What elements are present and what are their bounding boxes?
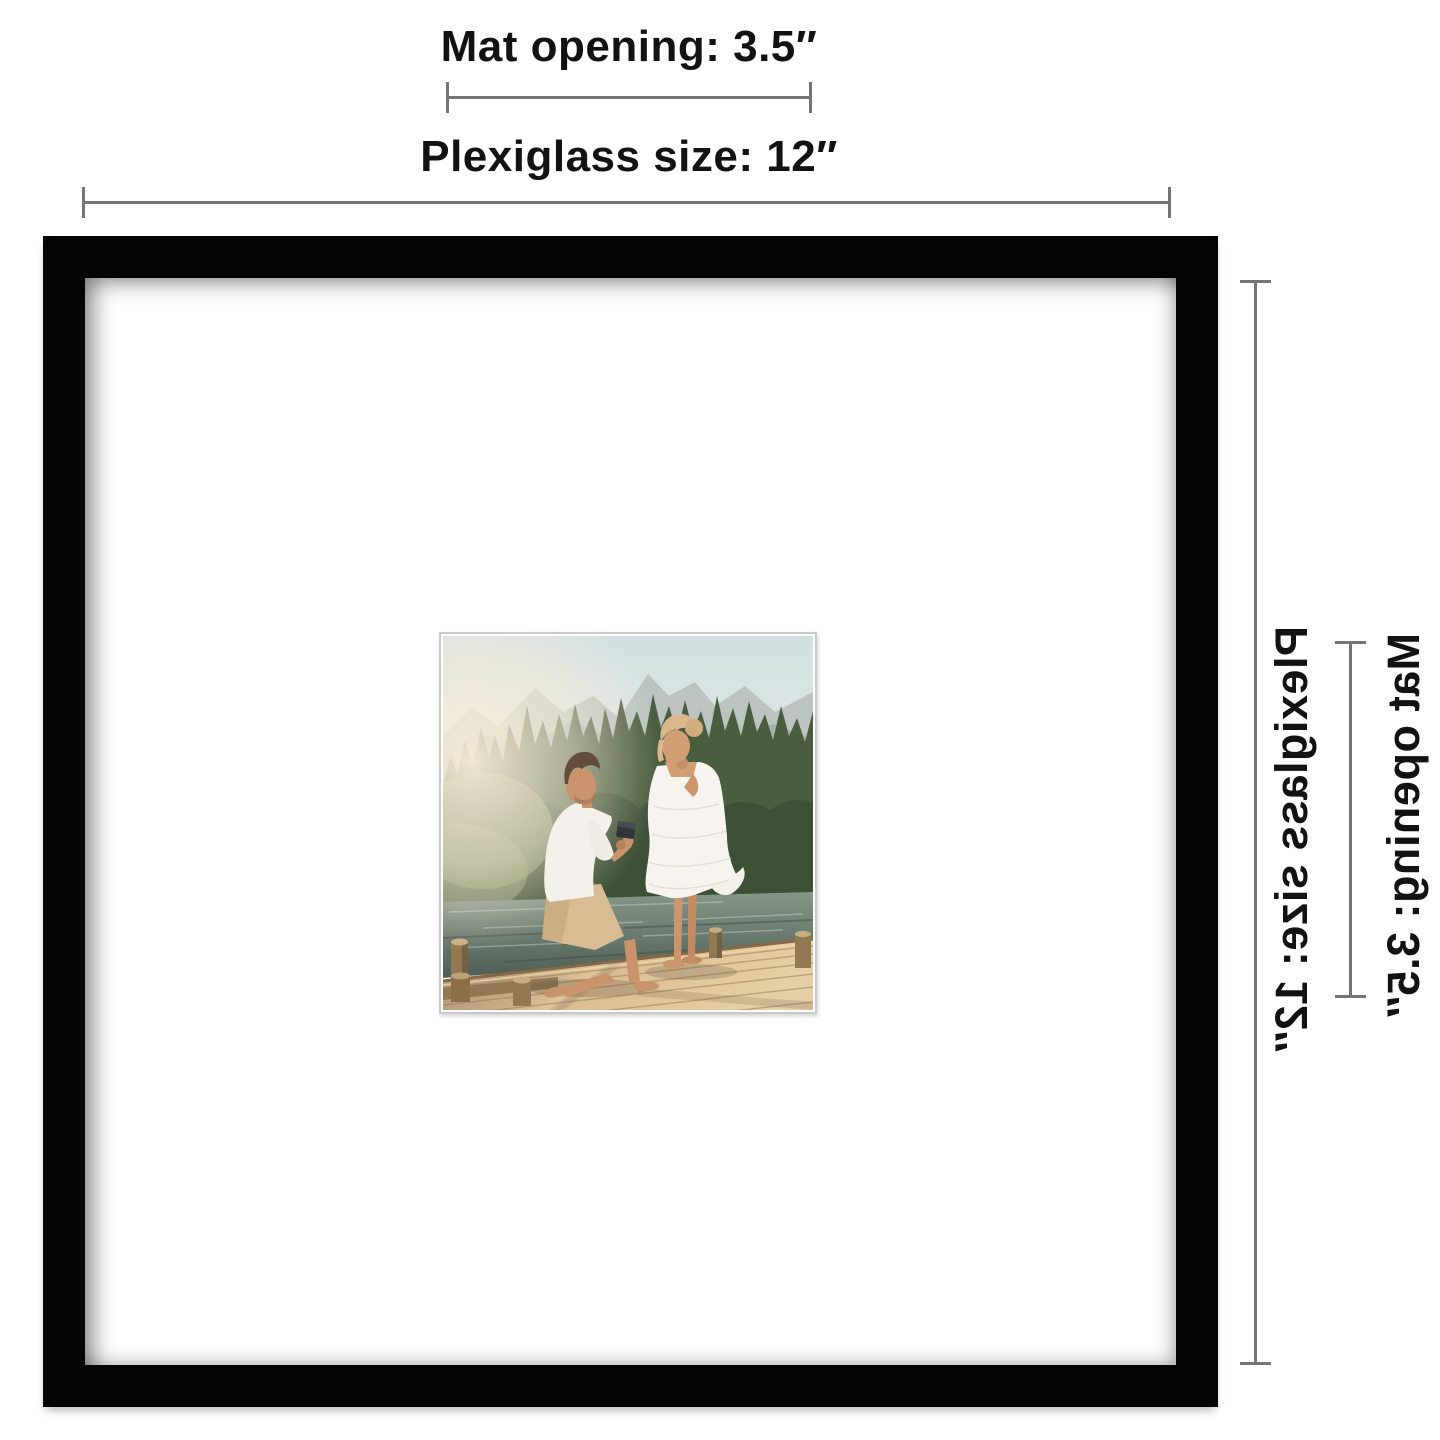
dimension-tick [809,82,812,113]
plexiglass-top-label: Plexiglass size: 12″ [420,132,838,182]
dimension-bar [1254,280,1257,1365]
picture-frame [43,236,1218,1407]
mat-opening-right-dimension-line [1335,641,1366,998]
mat-opening-top-dimension-line [446,82,812,113]
mat-opening-top-label: Mat opening: 3.5″ [441,22,818,72]
dimension-bar [82,201,1171,204]
plexiglass-right-label: Plexiglass size: 12″ [1266,626,1318,1053]
photo-illustration [443,636,813,1010]
plexiglass-top-dimension-line [82,187,1171,218]
dimension-bar [1349,641,1352,998]
mat-opening-right-label: Mat opening: 3.5″ [1378,633,1430,1018]
photo [439,632,817,1014]
dimension-tick [1240,1362,1271,1365]
product-dimension-diagram: Mat opening: 3.5″ Plexiglass size: 12″ [0,0,1440,1440]
dimension-tick [1168,187,1171,218]
dimension-bar [446,96,812,99]
photo-tone-overlay [443,636,813,1010]
dimension-tick [1335,995,1366,998]
mat-board [85,278,1176,1365]
